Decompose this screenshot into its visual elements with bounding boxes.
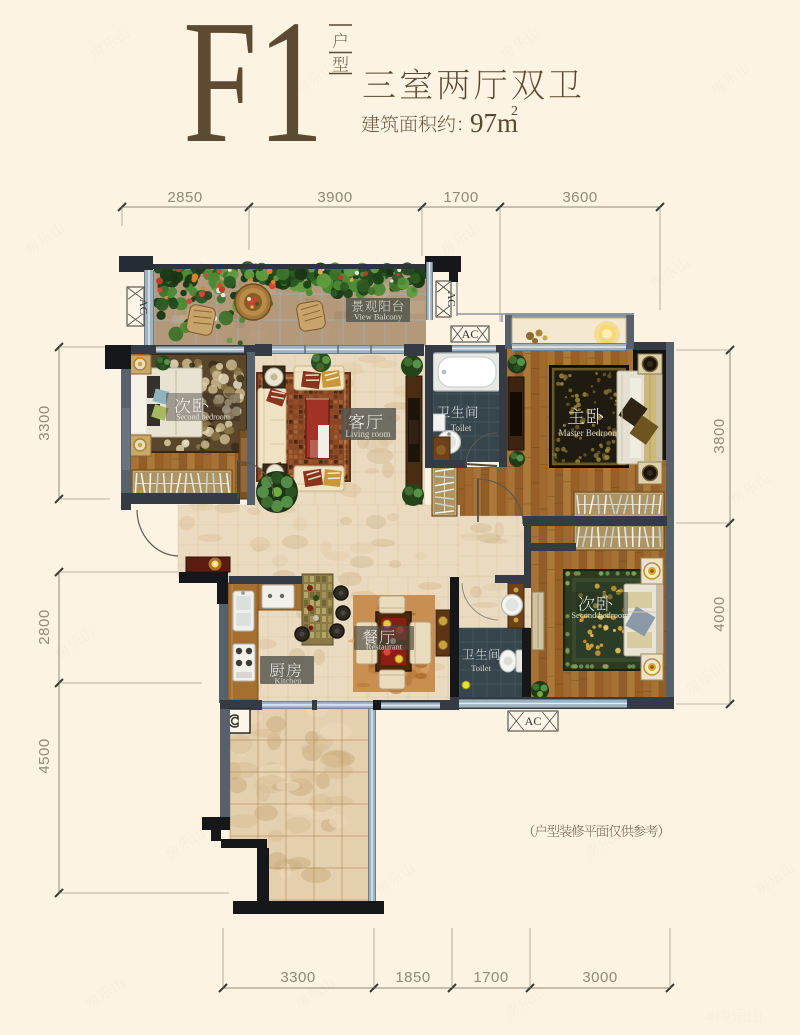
svg-text:1700: 1700 bbox=[443, 189, 478, 206]
svg-text:3300: 3300 bbox=[36, 405, 53, 440]
svg-text:3900: 3900 bbox=[317, 189, 352, 206]
svg-text:3800: 3800 bbox=[711, 418, 728, 453]
svg-text:4000: 4000 bbox=[711, 596, 728, 631]
svg-text:Living room: Living room bbox=[345, 429, 390, 439]
svg-text:2: 2 bbox=[511, 104, 518, 119]
svg-text:2800: 2800 bbox=[36, 609, 53, 644]
svg-text:1700: 1700 bbox=[473, 969, 508, 986]
svg-text:3600: 3600 bbox=[562, 189, 597, 206]
svg-text:AC: AC bbox=[525, 714, 542, 728]
svg-text:F1: F1 bbox=[183, 0, 324, 180]
svg-text:AC: AC bbox=[137, 299, 149, 314]
svg-text:4500: 4500 bbox=[36, 738, 53, 773]
svg-text:2850: 2850 bbox=[167, 189, 202, 206]
svg-text:1850: 1850 bbox=[395, 969, 430, 986]
svg-text:3300: 3300 bbox=[280, 969, 315, 986]
svg-text:AC: AC bbox=[462, 327, 479, 341]
svg-text:Kitchen: Kitchen bbox=[275, 676, 303, 686]
svg-text:Toilet: Toilet bbox=[471, 663, 491, 673]
svg-text:Master Bedroom: Master Bedroom bbox=[559, 428, 620, 438]
svg-text:Toilet: Toilet bbox=[451, 423, 472, 433]
svg-text:AC: AC bbox=[445, 291, 457, 306]
svg-text:View Balcony: View Balcony bbox=[354, 312, 403, 322]
svg-text:Second bedroom: Second bedroom bbox=[571, 610, 629, 620]
svg-text:Second bedroom: Second bedroom bbox=[176, 413, 231, 422]
svg-text:Restaurant: Restaurant bbox=[366, 642, 403, 652]
svg-text:3000: 3000 bbox=[582, 969, 617, 986]
